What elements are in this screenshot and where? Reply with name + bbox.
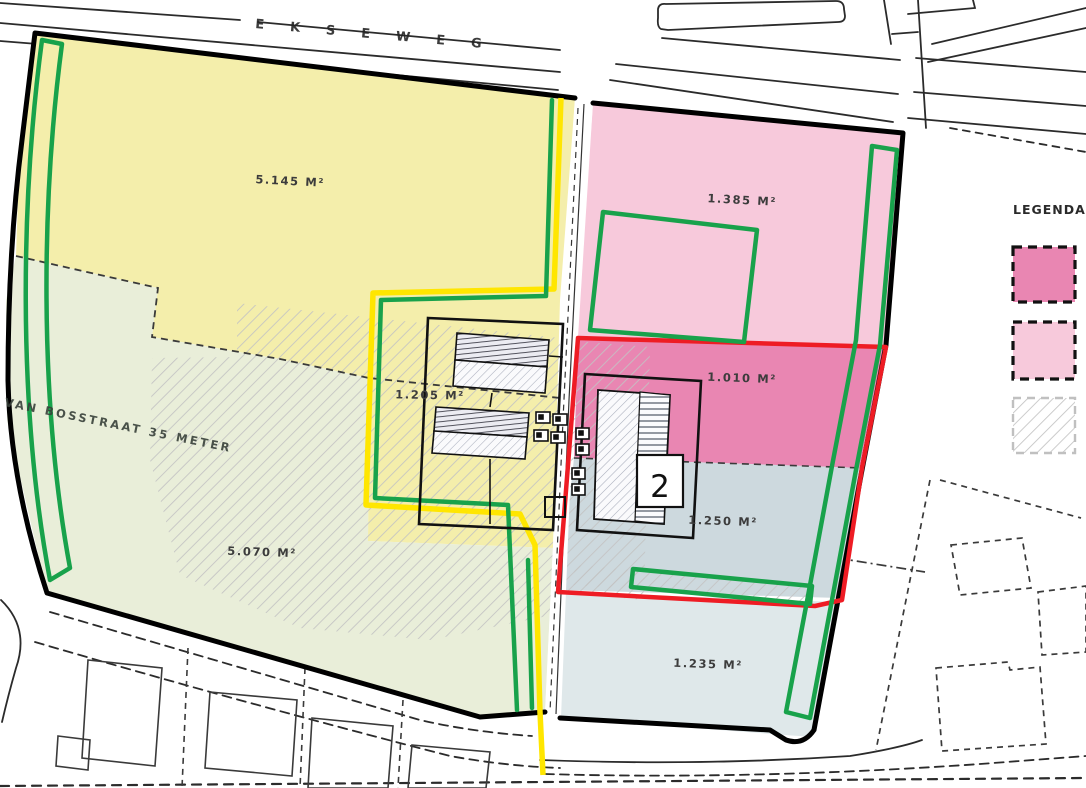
legend-title: LEGENDA: [1013, 202, 1086, 217]
parcel-pink-light-fill: [578, 103, 903, 345]
legend: LEGENDA: [1013, 202, 1086, 453]
east-parcels: [837, 480, 1086, 751]
site-plan-map: 2 5.145 M² 5.070 M² 1.205 M² 1.385 M² 1.…: [0, 0, 1086, 788]
house-outline: [205, 692, 297, 776]
building-number: 2: [650, 469, 670, 505]
fence-line-dashed: [0, 778, 1086, 786]
legend-swatch-dark-pink: [1013, 247, 1075, 302]
garage-dot: [556, 417, 560, 421]
area-label: 1.235 M²: [673, 656, 743, 672]
garage-dot: [579, 431, 583, 435]
garage-dot: [537, 433, 541, 437]
garage-dot: [539, 415, 543, 419]
house-outline: [1038, 586, 1086, 655]
house-outline: [56, 736, 90, 770]
road-line: [928, 8, 1086, 62]
road-line: [540, 740, 922, 762]
garage-dot: [575, 471, 579, 475]
area-label: 1.010 M²: [707, 370, 777, 386]
parcel-line-dashed: [940, 480, 1081, 518]
area-label: 1.205 M²: [395, 387, 465, 402]
garage-dot: [575, 487, 579, 491]
legend-swatch-light-pink: [1013, 322, 1075, 379]
parcel-line-dashed: [876, 480, 930, 750]
road-line: [884, 0, 926, 128]
house-outline: [408, 745, 490, 788]
road-island: [658, 1, 845, 30]
garage-dot: [579, 447, 583, 451]
legend-swatch-hatched: [1013, 398, 1075, 453]
area-label: 1.250 M²: [688, 513, 758, 529]
house-outline: [936, 662, 1046, 751]
area-label: 5.070 M²: [227, 544, 297, 560]
site-plan-canvas: 2 5.145 M² 5.070 M² 1.205 M² 1.385 M² 1.…: [0, 0, 1086, 788]
house-outline: [308, 718, 393, 788]
house-outline: [951, 538, 1031, 595]
garage-dot: [554, 435, 558, 439]
road-corner: [1, 600, 21, 722]
